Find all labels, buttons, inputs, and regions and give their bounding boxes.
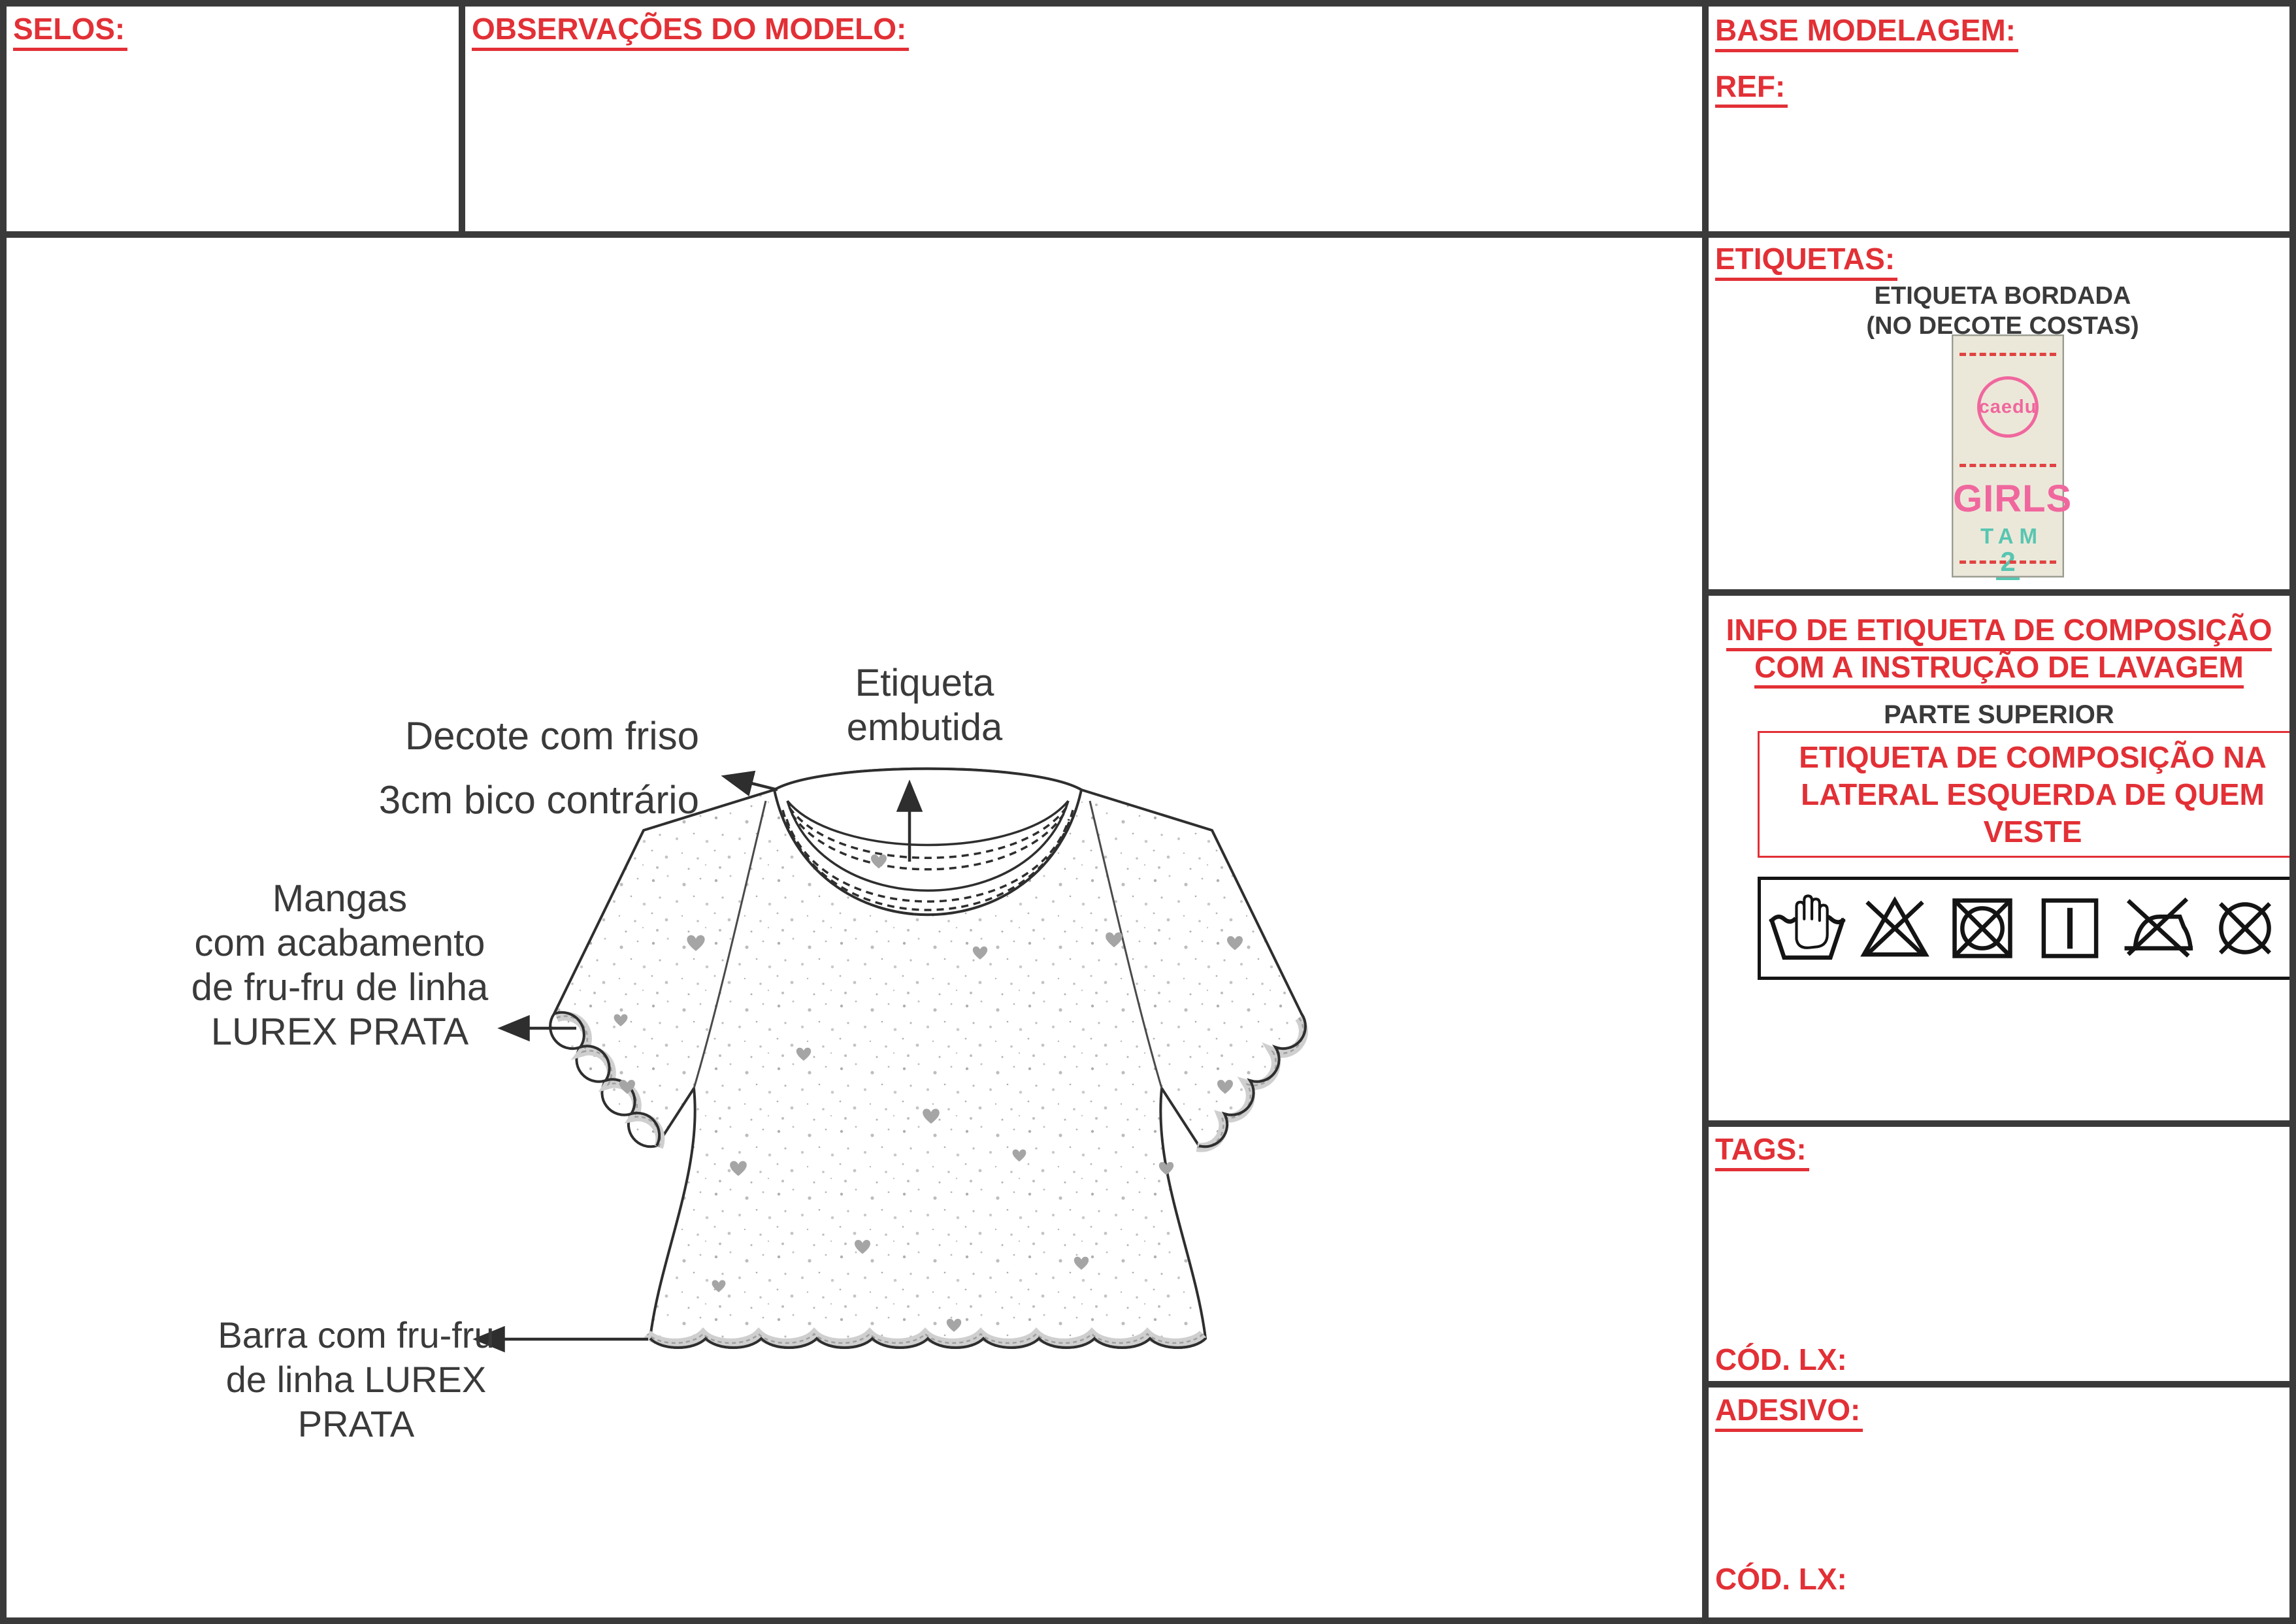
etiquetas-section: ETIQUETAS: ETIQUETA BORDADA (NO DECOTE C… xyxy=(1709,238,2289,596)
stitch-line xyxy=(1960,560,2056,564)
tshirt-technical-drawing xyxy=(523,747,1346,1414)
brand-name: caedu xyxy=(1979,397,2037,418)
do-not-tumble-dry-icon xyxy=(1944,890,2021,967)
adesivo-section: ADESIVO: CÓD. LX: xyxy=(1709,1388,2289,1617)
do-not-iron-icon xyxy=(2119,890,2196,967)
do-not-dry-clean-icon xyxy=(2206,890,2284,967)
drawing-area: Etiqueta embutida Decote com friso 3cm b… xyxy=(7,244,1702,1617)
caption-line: ETIQUETA BORDADA xyxy=(1741,281,2264,311)
care-symbols-box xyxy=(1758,877,2295,980)
right-panel: BASE MODELAGEM: REF: ETIQUETAS: ETIQUETA… xyxy=(1702,7,2289,1617)
annotation-line: 3cm bico contrário xyxy=(359,768,699,832)
annotation-decote: Decote com friso 3cm bico contrário xyxy=(359,704,699,832)
annotation-line: Mangas xyxy=(176,877,503,921)
annotation-line: Barra com fru-fru xyxy=(199,1313,513,1357)
brand-label-tag: caedu GIRLS TAM 2 xyxy=(1952,334,2064,577)
adesivo-title: ADESIVO: xyxy=(1715,1394,1863,1432)
caedu-logo: caedu xyxy=(1977,376,2039,438)
etiqueta-bordada-caption: ETIQUETA BORDADA (NO DECOTE COSTAS) xyxy=(1741,281,2264,341)
adesivo-cod-lx-label: CÓD. LX: xyxy=(1715,1563,1850,1598)
annotation-etiqueta-embutida: Etiqueta embutida xyxy=(820,661,1029,750)
annotation-line: de fru-fru de linha xyxy=(176,966,503,1010)
base-modelagem-title: BASE MODELAGEM: xyxy=(1715,14,2018,52)
annotation-line: Decote com friso xyxy=(359,704,699,768)
etiquetas-title: ETIQUETAS: xyxy=(1715,243,1897,281)
info-title: INFO DE ETIQUETA DE COMPOSIÇÃO COM A INS… xyxy=(1709,611,2289,686)
selos-box: SELOS: xyxy=(7,7,465,238)
annotation-barra: Barra com fru-fru de linha LUREX PRATA xyxy=(199,1313,513,1446)
annotation-line: LUREX PRATA xyxy=(176,1010,503,1054)
selos-title: SELOS: xyxy=(13,13,127,51)
stitch-line xyxy=(1960,353,2056,356)
label-girls-text: GIRLS xyxy=(1953,477,2063,521)
info-title-line: COM A INSTRUÇÃO DE LAVAGEM xyxy=(1754,650,2244,689)
annotation-line: de linha LUREX PRATA xyxy=(199,1357,513,1446)
tags-title: TAGS: xyxy=(1715,1133,1809,1171)
annotation-mangas: Mangas com acabamento de fru-fru de linh… xyxy=(176,877,503,1054)
label-tam-text: TAM xyxy=(1957,524,2067,549)
composicao-note-box: ETIQUETA DE COMPOSIÇÃO NA LATERAL ESQUER… xyxy=(1758,731,2296,858)
parte-superior-label: PARTE SUPERIOR xyxy=(1709,700,2289,730)
hand-wash-icon xyxy=(1769,890,1846,967)
info-composicao-section: INFO DE ETIQUETA DE COMPOSIÇÃO COM A INS… xyxy=(1709,596,2289,1127)
drip-dry-icon xyxy=(2031,890,2108,967)
stitch-line xyxy=(1960,464,2056,467)
base-modelagem-section: BASE MODELAGEM: REF: xyxy=(1709,7,2289,238)
ref-title: REF: xyxy=(1715,71,1788,108)
tags-cod-lx-label: CÓD. LX: xyxy=(1715,1344,1850,1378)
annotation-line: com acabamento xyxy=(176,921,503,966)
info-title-line: INFO DE ETIQUETA DE COMPOSIÇÃO xyxy=(1726,613,2272,651)
annotation-line: Etiqueta xyxy=(820,661,1029,706)
observacoes-box: OBSERVAÇÕES DO MODELO: xyxy=(465,7,1702,238)
annotation-line: embutida xyxy=(820,706,1029,750)
tags-section: TAGS: CÓD. LX: xyxy=(1709,1127,2289,1388)
tech-pack-sheet: SELOS: OBSERVAÇÕES DO MODELO: xyxy=(0,0,2296,1624)
composicao-note-text: ETIQUETA DE COMPOSIÇÃO NA LATERAL ESQUER… xyxy=(1778,739,2288,851)
do-not-bleach-icon xyxy=(1856,890,1933,967)
observacoes-title: OBSERVAÇÕES DO MODELO: xyxy=(472,13,909,51)
